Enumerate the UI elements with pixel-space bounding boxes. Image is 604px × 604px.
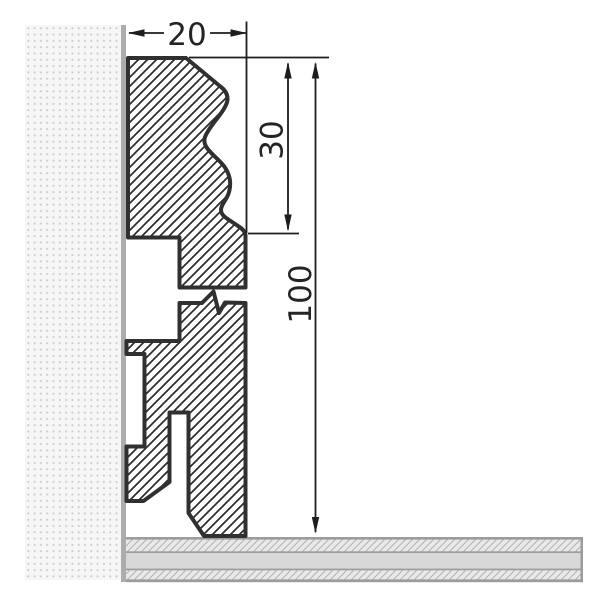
arrow-left-icon — [128, 29, 145, 36]
floor-right-border — [581, 537, 584, 582]
drawing-canvas: 20 30 100 — [0, 0, 604, 604]
floor — [126, 537, 583, 583]
profile-lower-section — [127, 292, 246, 537]
wall — [25, 25, 121, 580]
profile-upper-section — [128, 58, 246, 288]
floor-top-border — [126, 537, 583, 540]
arrow-up-icon — [284, 62, 291, 79]
floor-divider-lower — [126, 569, 583, 571]
floor-layer-bottom-hatched — [126, 571, 583, 580]
dimension-upper-height-label: 30 — [255, 120, 291, 159]
skirting-profile-drawing: 20 30 100 — [0, 0, 604, 604]
dimension-width-label: 20 — [167, 17, 206, 53]
floor-bottom-border — [126, 579, 583, 582]
arrow-down-icon — [312, 517, 319, 534]
floor-divider-upper — [126, 551, 583, 553]
floor-layer-top-hatched — [126, 540, 583, 552]
arrow-right-icon — [231, 29, 248, 36]
arrow-up-icon — [312, 62, 319, 79]
dimension-total-height-label: 100 — [283, 264, 319, 323]
arrow-down-icon — [284, 215, 291, 232]
